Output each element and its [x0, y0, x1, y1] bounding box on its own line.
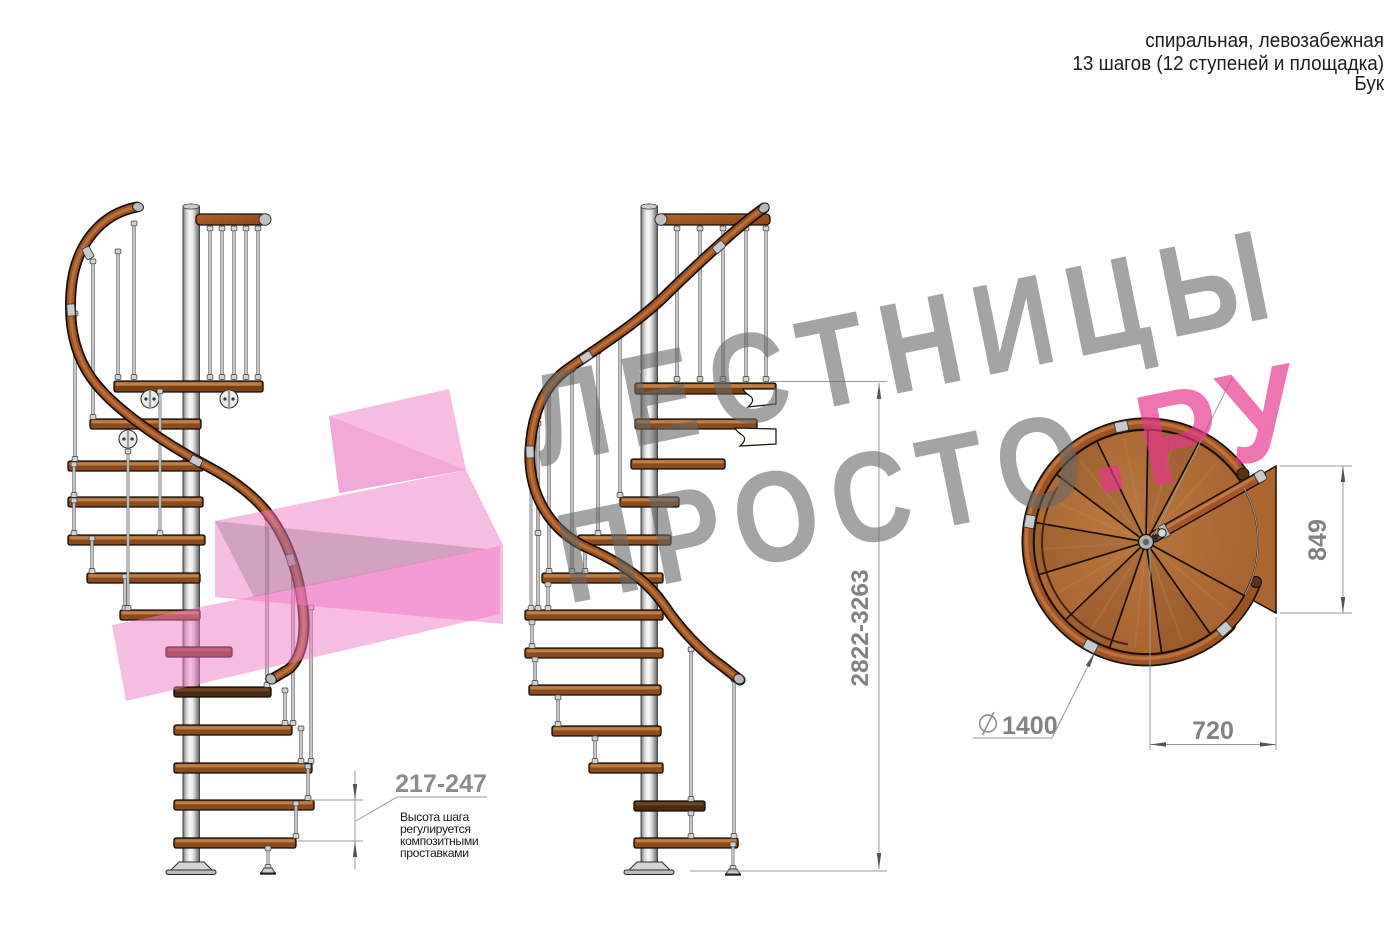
svg-text:2822-3263: 2822-3263 [847, 569, 874, 686]
svg-text:спиральная, левозабежная: спиральная, левозабежная [1145, 29, 1384, 52]
svg-text:849: 849 [1304, 519, 1332, 561]
svg-text:Бук: Бук [1354, 72, 1384, 95]
svg-text:217-247: 217-247 [395, 770, 487, 798]
svg-text:720: 720 [1192, 717, 1234, 745]
svg-text:1400: 1400 [1002, 712, 1058, 740]
svg-text:13 шагов (12 ступеней и площад: 13 шагов (12 ступеней и площадка) [1072, 52, 1384, 75]
svg-text:проставками: проставками [400, 846, 469, 860]
